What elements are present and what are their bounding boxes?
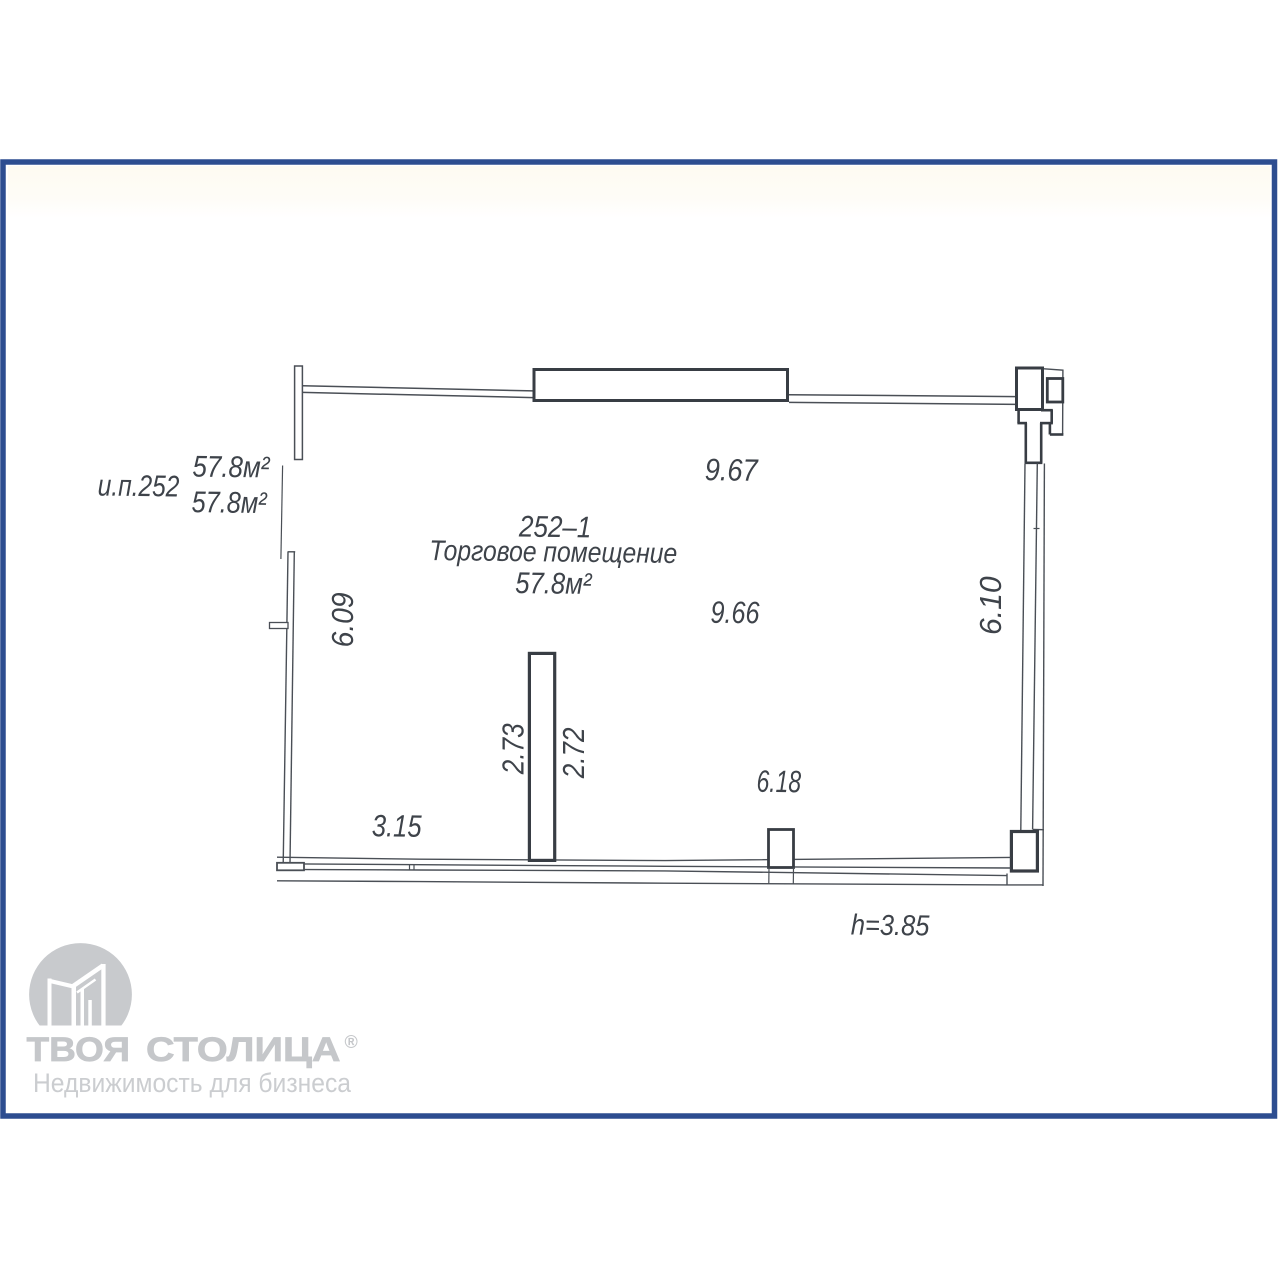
svg-text:2.73: 2.73 <box>496 723 531 775</box>
svg-text:h=3.85: h=3.85 <box>851 910 931 943</box>
svg-text:9.67: 9.67 <box>704 452 759 488</box>
svg-text:57.8м²: 57.8м² <box>515 567 592 601</box>
svg-text:®: ® <box>345 1032 358 1052</box>
svg-text:Торговое помещение: Торговое помещение <box>429 535 677 570</box>
svg-text:Недвижимость для бизнеса: Недвижимость для бизнеса <box>33 1068 352 1098</box>
svg-text:6.18: 6.18 <box>756 764 801 800</box>
svg-text:ТВОЯ: ТВОЯ <box>27 1031 131 1069</box>
svg-text:9.66: 9.66 <box>710 595 760 631</box>
svg-text:2.72: 2.72 <box>556 728 591 780</box>
svg-text:57.8м²: 57.8м² <box>191 486 267 520</box>
svg-text:СТОЛИЦА: СТОЛИЦА <box>146 1031 341 1069</box>
svg-text:3.15: 3.15 <box>372 808 423 844</box>
svg-text:6.09: 6.09 <box>325 592 360 647</box>
svg-text:и.п.252: и.п.252 <box>98 470 180 504</box>
svg-text:57.8м²: 57.8м² <box>192 451 270 485</box>
svg-text:6.10: 6.10 <box>973 576 1008 635</box>
